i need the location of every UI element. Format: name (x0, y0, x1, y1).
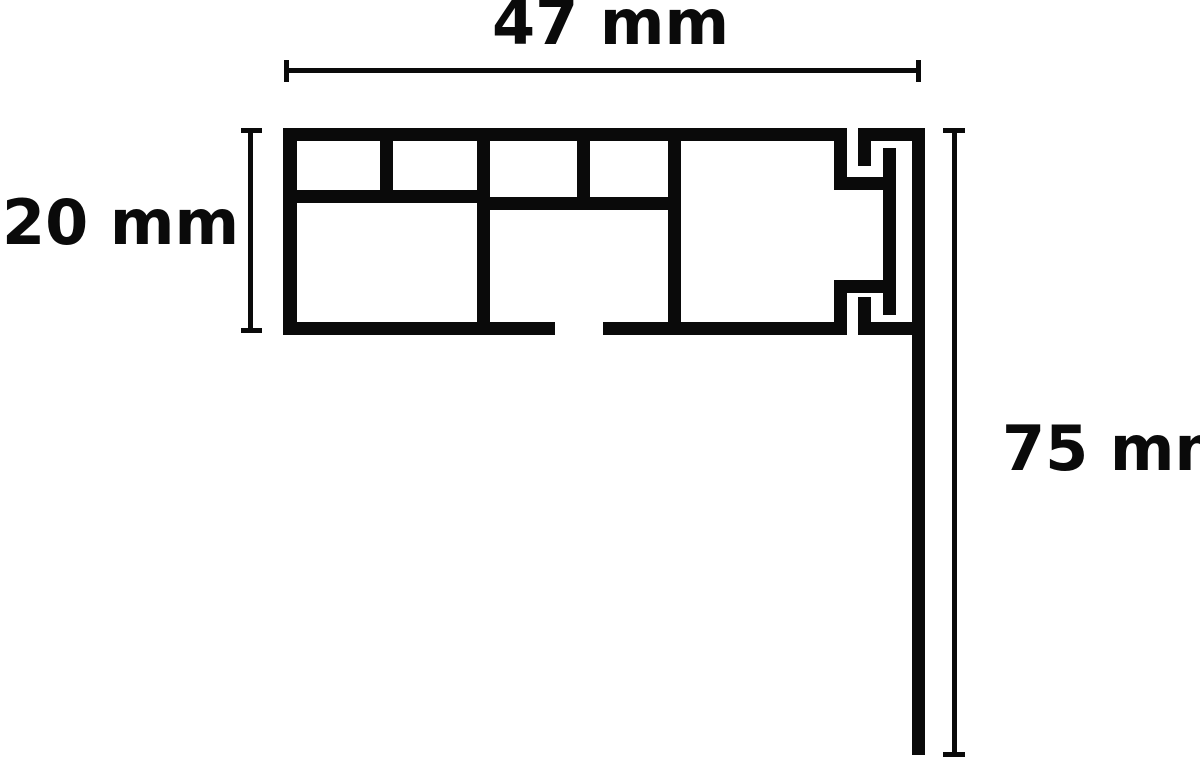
profile-divider-full-2 (668, 128, 681, 335)
dim-drop-tick-bottom (943, 752, 965, 757)
profile-bottom-bar-right (603, 322, 847, 335)
profile-bottom-bar-left (283, 322, 555, 335)
width-dimension-label: 47 mm (492, 0, 729, 54)
dim-height-tick-bottom (241, 328, 262, 333)
dim-width-tick-right (916, 60, 921, 82)
fascia-wall (912, 128, 925, 755)
clip-hook-bottom-horizontal (834, 280, 887, 293)
profile-top-bar (283, 128, 847, 141)
cover-leg-top (858, 141, 871, 166)
profile-dimension-diagram: 47 mm 20 mm 75 mm (0, 0, 1200, 763)
dim-width-line (285, 68, 921, 73)
clip-hook-top-horizontal (834, 177, 887, 190)
height-dimension-label: 20 mm (2, 192, 239, 254)
profile-divider-full-1 (477, 128, 490, 335)
profile-divider-small-1 (380, 128, 393, 203)
profile-left-wall (283, 128, 297, 335)
dim-height-tick-top (241, 128, 262, 133)
dim-height-line (248, 130, 253, 333)
dim-drop-tick-top (943, 128, 965, 133)
dim-drop-line (952, 130, 957, 755)
cover-leg-bottom (858, 297, 871, 322)
dim-width-tick-left (284, 60, 289, 82)
drop-dimension-label: 75 mm (1002, 418, 1200, 480)
profile-divider-small-2 (577, 128, 590, 210)
